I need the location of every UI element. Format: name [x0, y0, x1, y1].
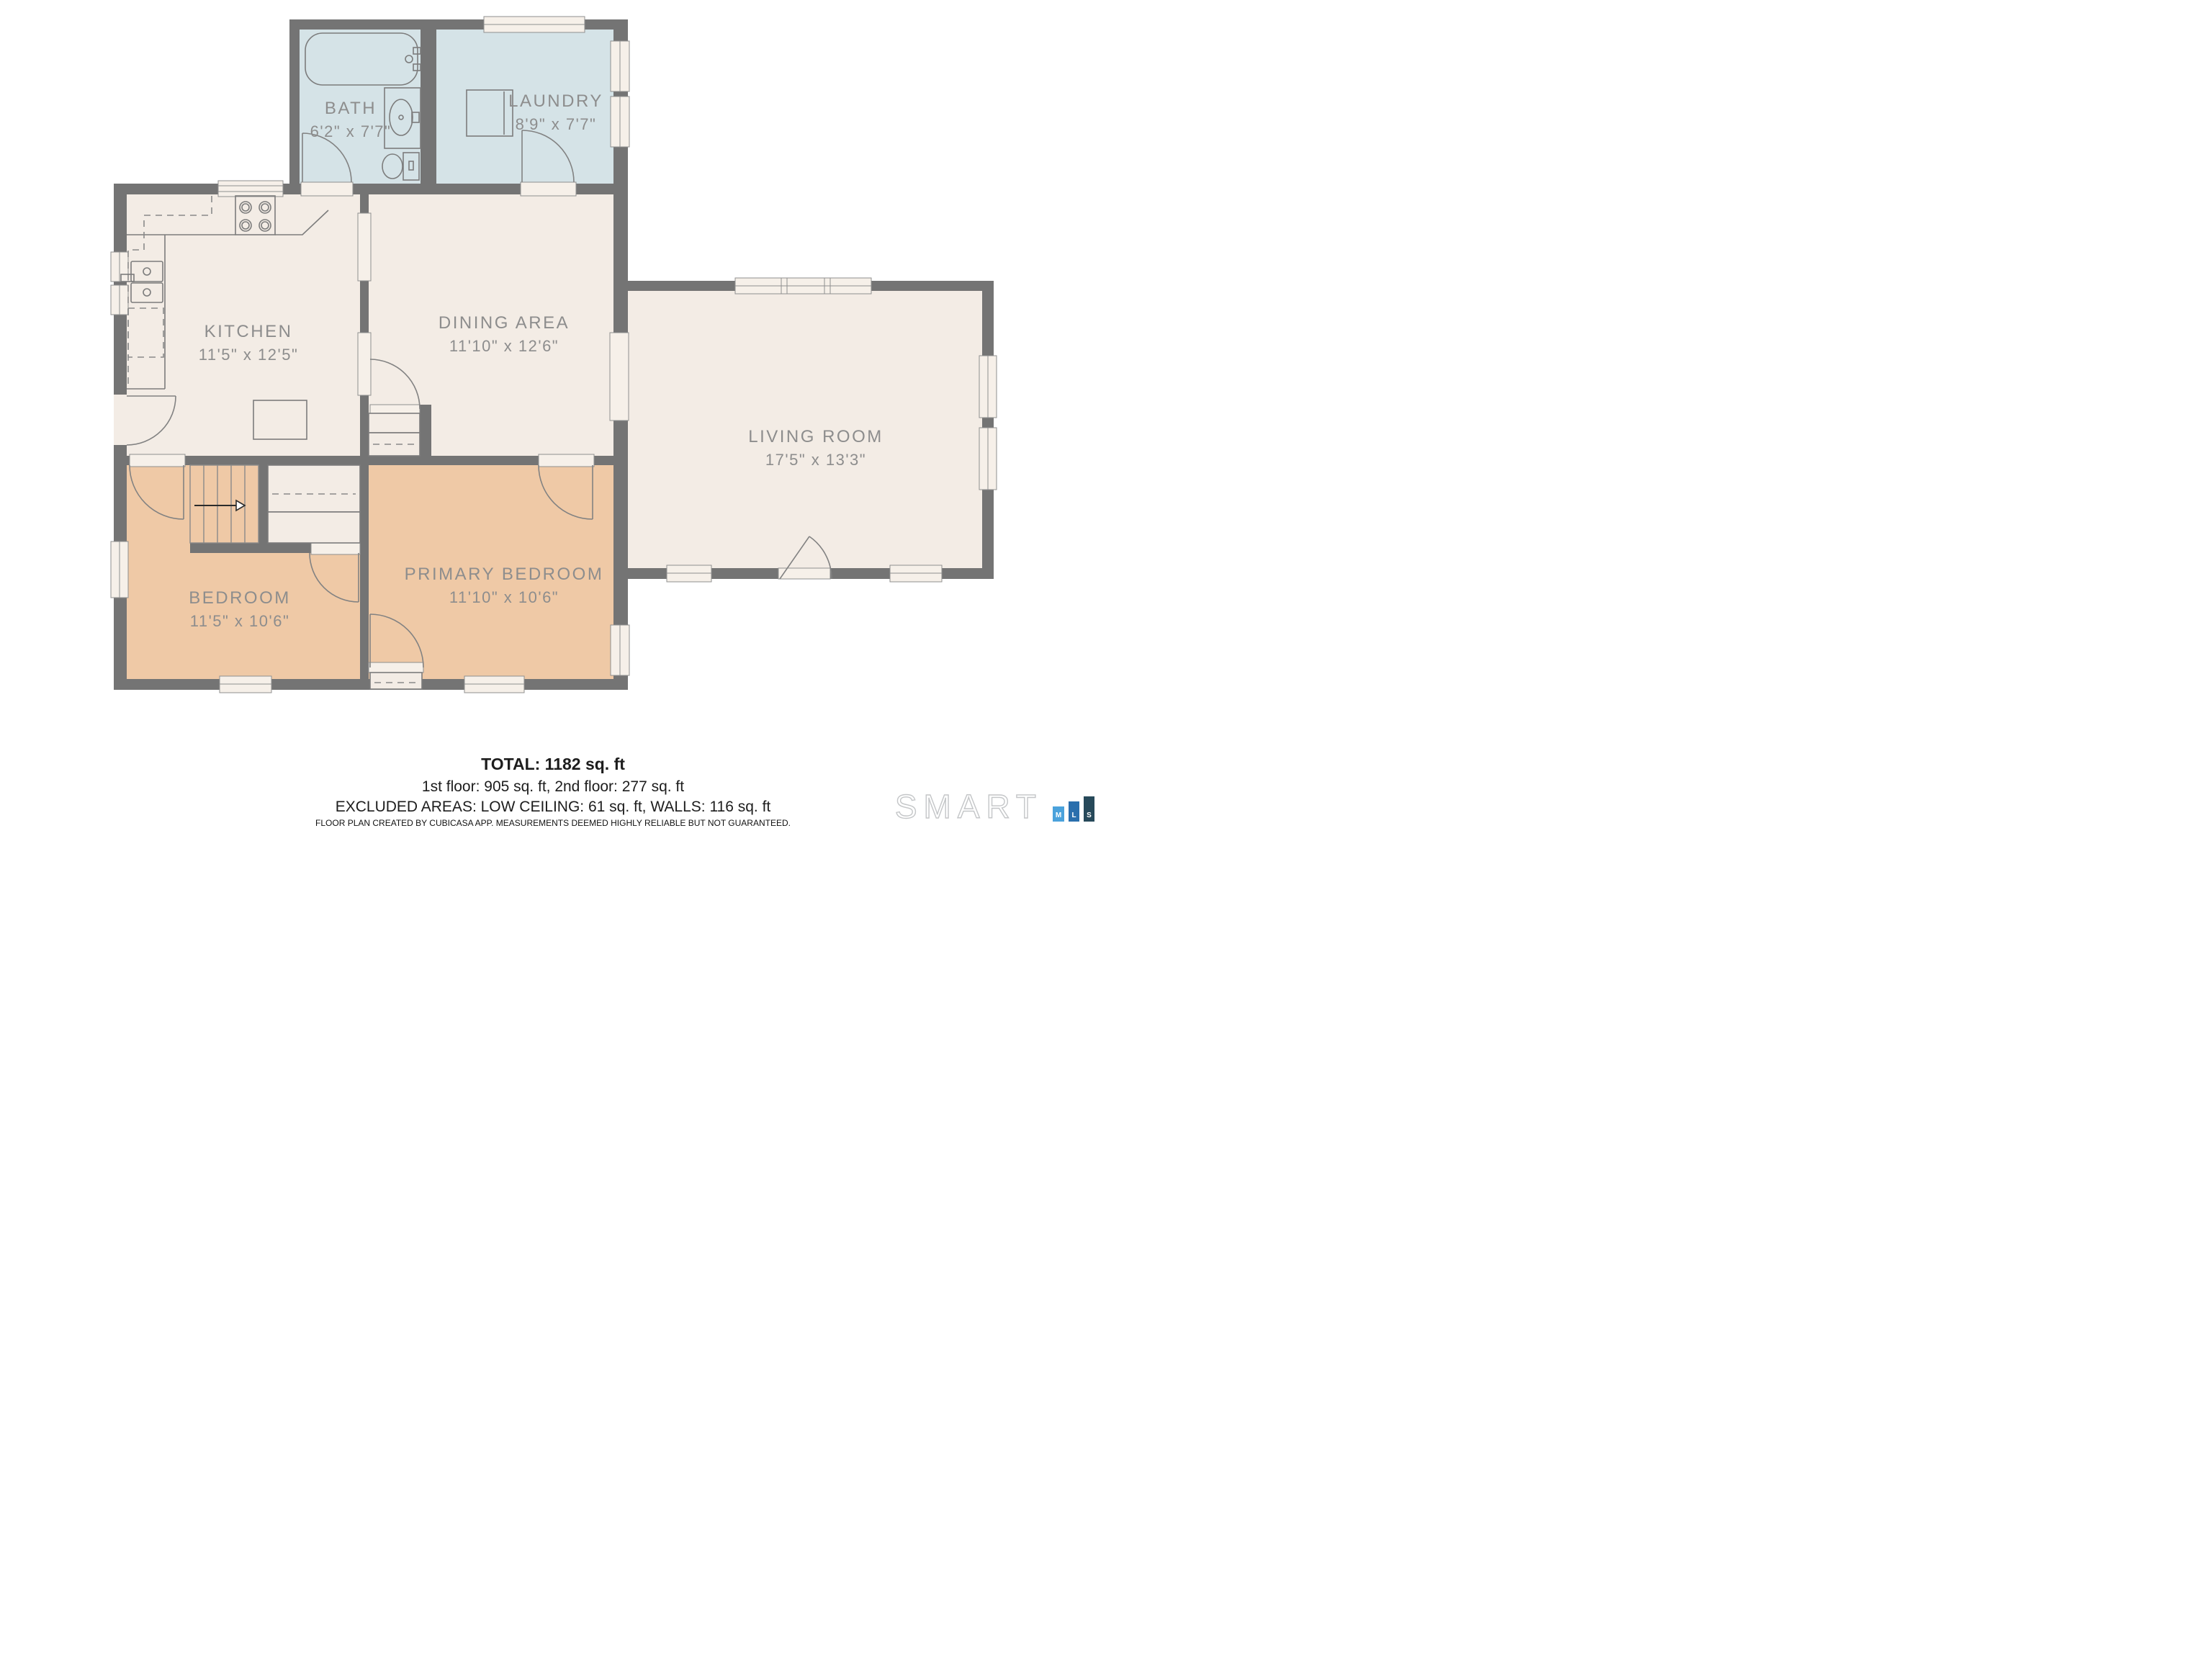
hall-closet [268, 465, 360, 543]
laundry-right-window-1 [611, 41, 629, 91]
room-label-primary: PRIMARY BEDROOM [405, 565, 604, 584]
pantry-closet [369, 413, 420, 456]
room-dims-bath: 6'2" x 7'7" [310, 122, 392, 140]
logo-bar-s: S [1084, 796, 1094, 822]
smartmls-logo: SMART M L S [895, 792, 1094, 822]
living-right-window-1 [979, 356, 997, 418]
bedroom-bottom-window [220, 676, 271, 693]
smartmls-logo-bars: M L S [1048, 796, 1094, 822]
room-label-living: LIVING ROOM [748, 427, 884, 446]
primary-closet [370, 673, 422, 689]
room-dims-dining: 11'10" x 12'6" [449, 337, 559, 355]
floor-plan-canvas: BATH 6'2" x 7'7" LAUNDRY 8'9" x 7'7" KIT… [0, 0, 1106, 829]
kitchen-top-window [218, 181, 283, 197]
room-dims-kitchen: 11'5" x 12'5" [199, 346, 299, 364]
bathtub-icon [305, 33, 421, 85]
dining-living-opening [610, 333, 629, 421]
washer-icon [467, 90, 513, 136]
room-dims-living: 17'5" x 13'3" [765, 451, 866, 469]
logo-bar-l: L [1069, 801, 1079, 822]
logo-bar-m: M [1053, 806, 1064, 822]
room-dims-primary: 11'10" x 10'6" [449, 588, 559, 606]
living-top-window [735, 278, 871, 294]
kitchen-left-window-2 [111, 285, 128, 315]
kitchen-dining-cased-opening-lower [358, 333, 371, 395]
room-label-bedroom: BEDROOM [189, 588, 291, 608]
kitchen-side-door-opening [114, 395, 127, 445]
living-right-window-2 [979, 428, 997, 490]
living-bottom-window-1 [667, 565, 711, 582]
floor-plan-page: { "colors": { "wall": "#747474", "cream"… [0, 0, 1106, 829]
laundry-top-window [484, 17, 585, 32]
laundry-right-window-2 [611, 96, 629, 147]
smartmls-brand-text: SMART [895, 792, 1043, 822]
room-label-kitchen: KITCHEN [204, 322, 293, 341]
primary-right-window [611, 625, 629, 675]
room-dims-bedroom: 11'5" x 10'6" [190, 612, 290, 630]
kitchen-left-window-1 [111, 252, 128, 282]
room-label-dining: DINING AREA [439, 313, 570, 333]
bedroom-left-window [111, 541, 128, 598]
room-label-laundry: LAUNDRY [508, 91, 603, 111]
primary-bottom-window [464, 676, 524, 693]
total-area-text: TOTAL: 1182 sq. ft [0, 755, 1106, 774]
living-bottom-window-2 [890, 565, 942, 582]
kitchen-dining-cased-opening-upper [358, 213, 371, 281]
room-label-bath: BATH [325, 99, 377, 118]
room-dims-laundry: 8'9" x 7'7" [516, 115, 597, 133]
